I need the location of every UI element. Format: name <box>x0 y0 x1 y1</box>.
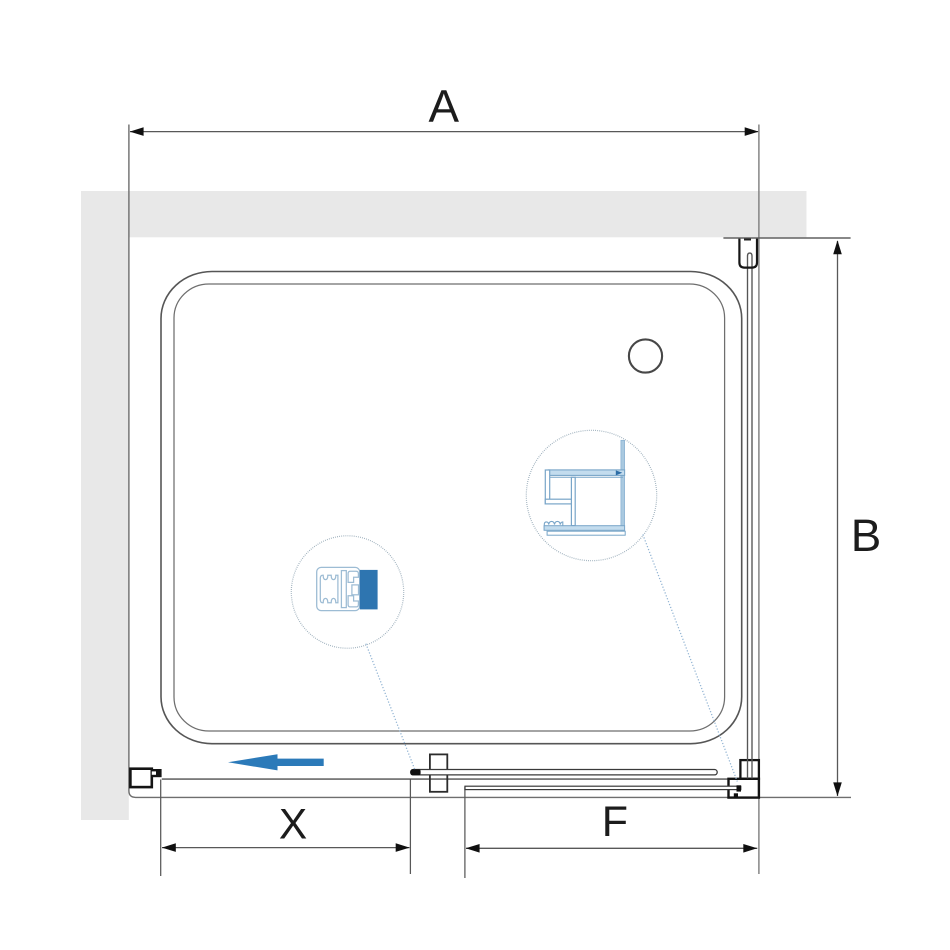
svg-text:A: A <box>429 80 460 131</box>
svg-text:F: F <box>602 798 628 846</box>
svg-text:B: B <box>851 510 882 561</box>
svg-text:X: X <box>279 801 307 848</box>
